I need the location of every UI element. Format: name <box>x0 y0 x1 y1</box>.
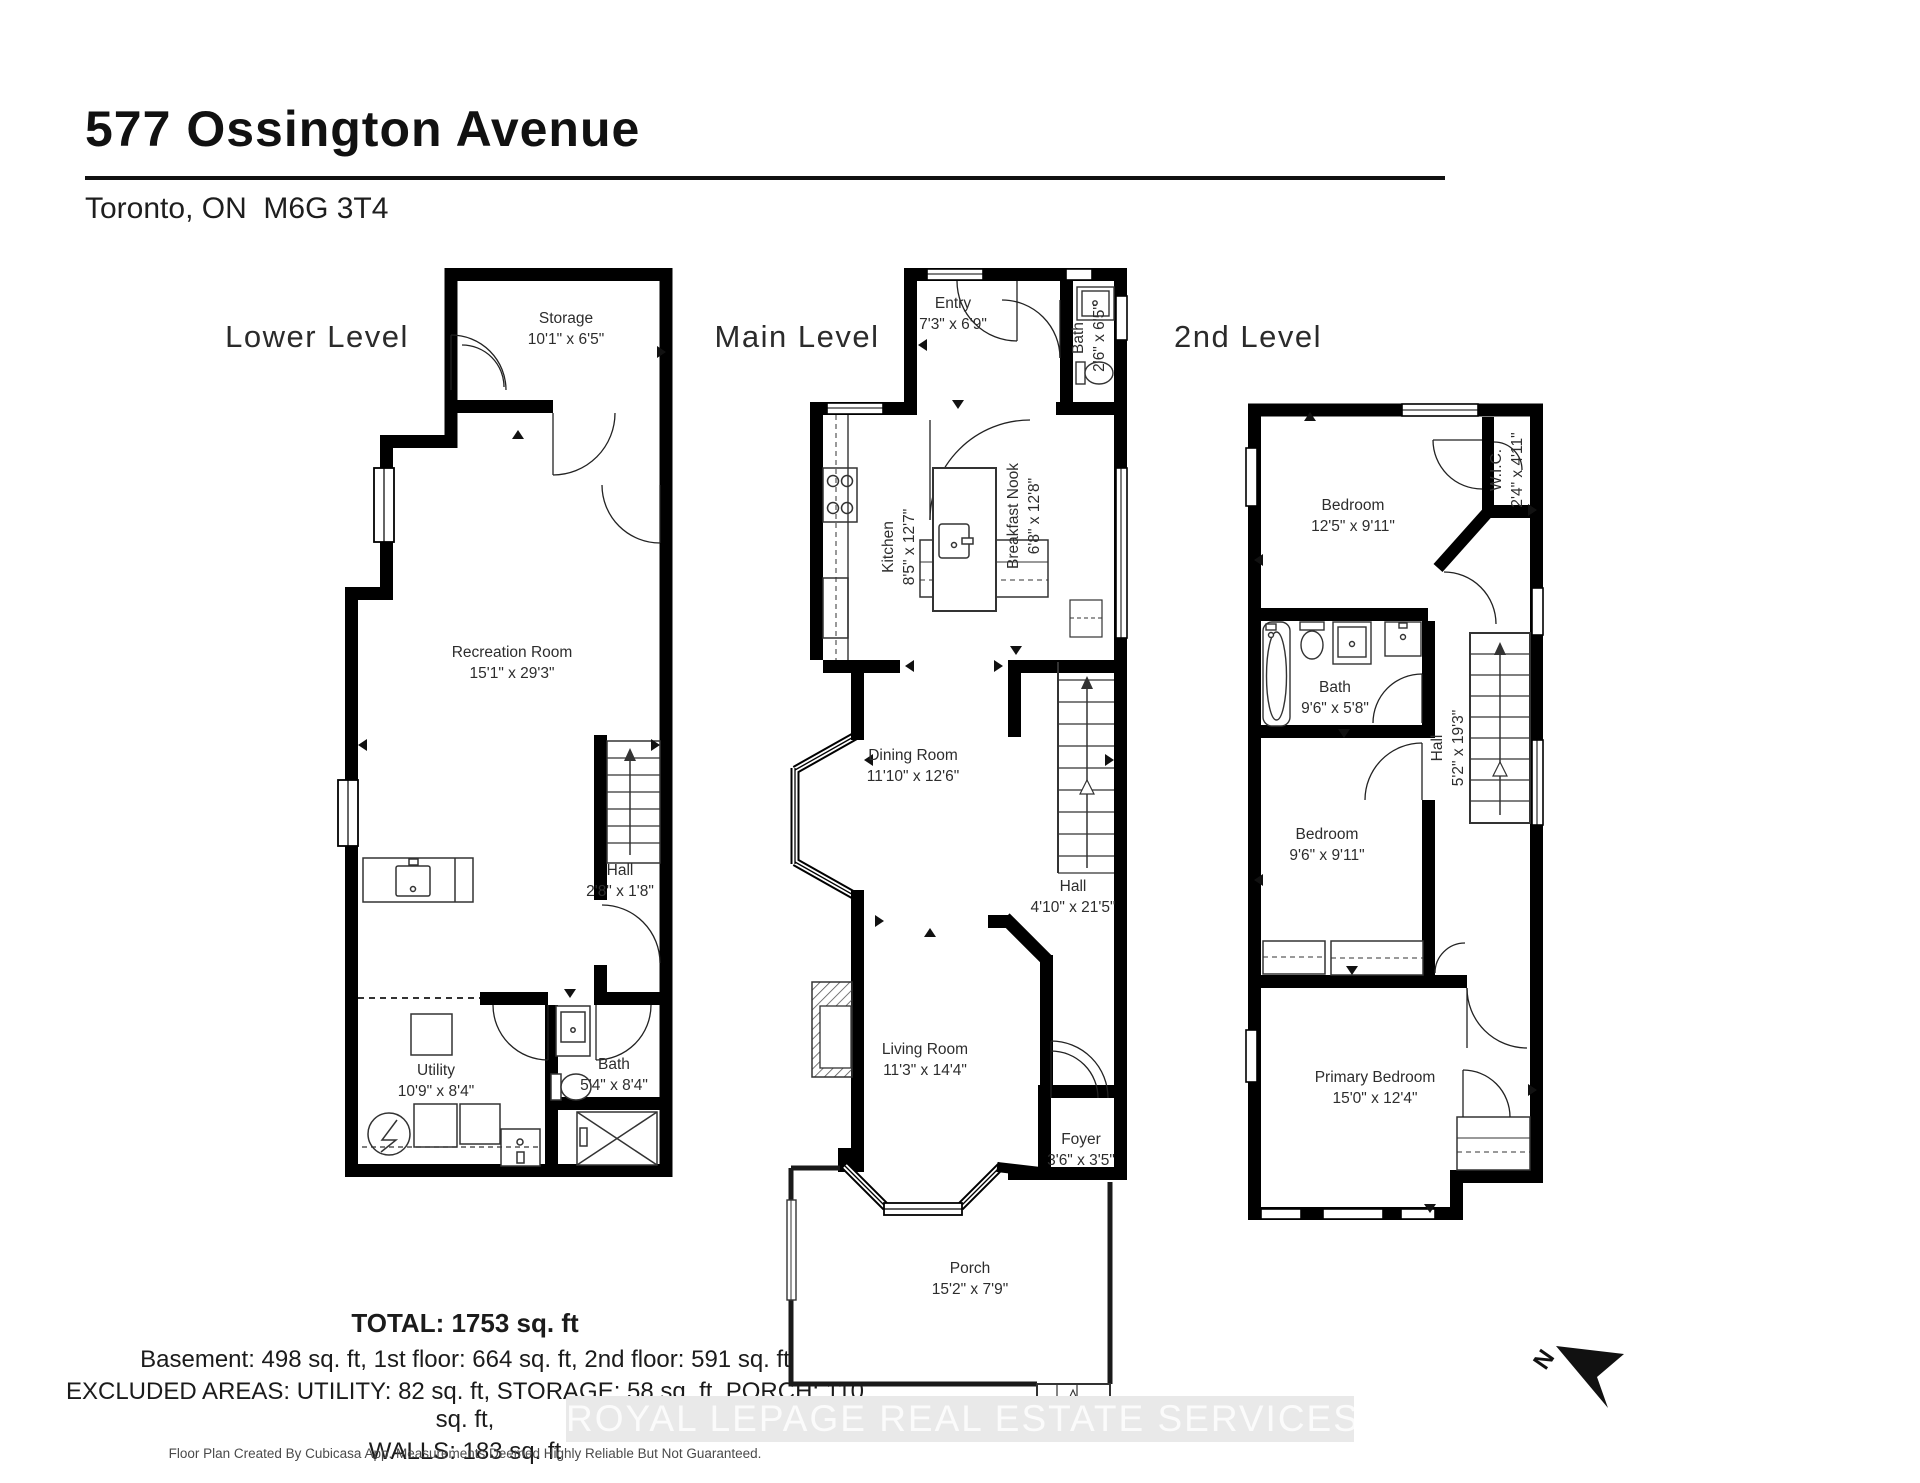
north-arrow-icon <box>1556 1346 1624 1408</box>
room-label-bath-lower: Bath 5'4" x 8'4" <box>580 1054 648 1096</box>
main-level-linework <box>787 269 1127 1428</box>
room-label-wic: W.I.C. 2'4" x 4'11" <box>1486 432 1528 507</box>
room-label-bedroom2: Bedroom 9'6" x 9'11" <box>1289 824 1364 866</box>
room-label-hall-second: Hall 5'2" x 19'3" <box>1427 710 1469 786</box>
lower-level-label: Lower Level <box>225 319 409 355</box>
main-level-label: Main Level <box>715 319 880 355</box>
room-label-bath-second: Bath 9'6" x 5'8" <box>1301 677 1369 719</box>
room-label-living: Living Room 11'3" x 14'4" <box>882 1039 968 1081</box>
room-label-kitchen: Kitchen 8'5" x 12'7" <box>878 509 920 585</box>
floorplan-page: 577 Ossington Avenue Toronto, ON M6G 3T4 <box>0 0 1920 1483</box>
room-label-recreation: Recreation Room 15'1" x 29'3" <box>452 642 573 684</box>
room-label-entry: Entry 7'3" x 6'9" <box>919 293 987 335</box>
room-label-bath-main: Bath 2'6" x 6'5" <box>1068 304 1110 372</box>
room-label-utility: Utility 10'9" x 8'4" <box>398 1060 474 1102</box>
room-label-storage: Storage 10'1" x 6'5" <box>528 308 604 350</box>
disclaimer-footer: Floor Plan Created By Cubicasa App. Meas… <box>60 1446 870 1461</box>
second-level-label: 2nd Level <box>1174 319 1322 355</box>
room-label-dining: Dining Room 11'10" x 12'6" <box>867 745 959 787</box>
room-label-foyer: Foyer 3'6" x 3'5" <box>1047 1129 1115 1171</box>
room-label-bedroom1: Bedroom 12'5" x 9'11" <box>1311 495 1395 537</box>
room-label-hall-lower: Hall 2'8" x 1'8" <box>586 860 654 902</box>
room-label-hall-main: Hall 4'10" x 21'5" <box>1030 876 1115 918</box>
room-label-porch: Porch 15'2" x 7'9" <box>932 1258 1008 1300</box>
lower-level-linework <box>338 275 666 1171</box>
total-area: TOTAL: 1753 sq. ft <box>60 1308 870 1339</box>
brokerage-watermark: ROYAL LEPAGE REAL ESTATE SERVICES LTD., … <box>566 1396 1354 1442</box>
floor-areas: Basement: 498 sq. ft, 1st floor: 664 sq.… <box>60 1346 870 1374</box>
room-label-breakfast-nook: Breakfast Nook 6'8" x 12'8" <box>1003 463 1045 569</box>
room-label-primary: Primary Bedroom 15'0" x 12'4" <box>1315 1067 1436 1109</box>
